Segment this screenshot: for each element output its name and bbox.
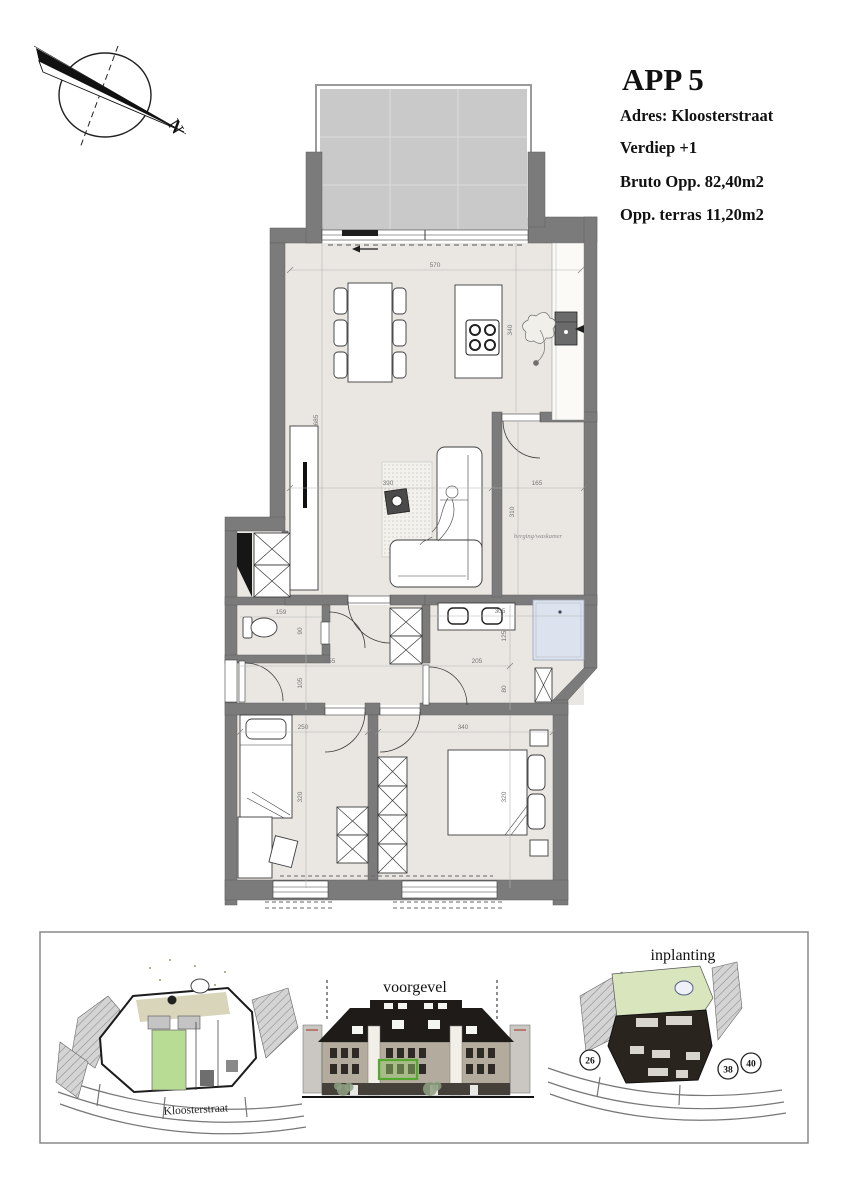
inplanting-label: inplanting bbox=[651, 947, 716, 964]
shaft-box bbox=[390, 636, 422, 664]
header-terrace-area: Opp. terras 11,20m2 bbox=[620, 205, 764, 224]
floorplan-page: N APP 5 Adres: Kloosterstraat Verdiep +1… bbox=[0, 0, 848, 1200]
house-number: 40 bbox=[746, 1060, 756, 1070]
shaft-box bbox=[535, 668, 552, 702]
tv bbox=[303, 462, 307, 508]
dim-label: 305 bbox=[495, 608, 506, 615]
voorgevel-label: voorgevel bbox=[383, 979, 447, 996]
dim-label: 685 bbox=[313, 414, 320, 425]
dining-table bbox=[334, 283, 406, 382]
house-number: 26 bbox=[585, 1057, 595, 1067]
dim-label: 320 bbox=[297, 791, 304, 802]
dim-label: 340 bbox=[507, 324, 514, 335]
wardrobe bbox=[337, 807, 368, 863]
nightstand bbox=[530, 730, 548, 746]
house-number: 38 bbox=[723, 1066, 733, 1076]
shaft-box bbox=[254, 565, 290, 597]
floor-plan: berging/waskamer bbox=[225, 85, 597, 908]
terrace bbox=[316, 85, 531, 235]
dim-label: 340 bbox=[458, 724, 469, 731]
dim-label: 159 bbox=[276, 609, 287, 616]
dim-label: 320 bbox=[501, 791, 508, 802]
header-floor: Verdiep +1 bbox=[620, 138, 697, 157]
plan-canvas: N APP 5 Adres: Kloosterstraat Verdiep +1… bbox=[0, 0, 848, 1200]
shaft-box bbox=[254, 533, 290, 565]
nightstand bbox=[530, 840, 548, 856]
side-table bbox=[385, 489, 410, 515]
header-address: Adres: Kloosterstraat bbox=[620, 106, 774, 125]
dim-label: 205 bbox=[472, 658, 483, 665]
site-panel: Kloosterstraat voorgevel bbox=[40, 932, 808, 1143]
dim-label: 355 bbox=[325, 658, 336, 665]
apartment-header: APP 5 Adres: Kloosterstraat Verdiep +1 B… bbox=[620, 62, 774, 224]
dim-label: 390 bbox=[383, 480, 394, 487]
kitchen-island bbox=[455, 285, 502, 378]
desk bbox=[238, 817, 272, 878]
dim-label: 250 bbox=[298, 724, 309, 731]
dim-label: 165 bbox=[532, 480, 543, 487]
header-gross-area: Bruto Opp. 82,40m2 bbox=[620, 172, 764, 191]
dim-label: 90 bbox=[297, 627, 304, 635]
dim-label: 570 bbox=[430, 262, 441, 269]
dim-label: 80 bbox=[501, 685, 508, 693]
toilet bbox=[243, 617, 277, 638]
apartment-facade-highlight bbox=[379, 1060, 417, 1079]
shower bbox=[533, 600, 584, 660]
wardrobe-column bbox=[378, 757, 407, 873]
single-bed bbox=[240, 715, 292, 818]
shaft-box bbox=[390, 608, 422, 636]
apartment-unit-highlight bbox=[152, 1030, 186, 1090]
berging-label: berging/waskamer bbox=[514, 533, 563, 540]
compass-north-label: N bbox=[164, 116, 188, 138]
dim-label: 310 bbox=[509, 506, 516, 517]
dim-label: 105 bbox=[297, 677, 304, 688]
apartment-title: APP 5 bbox=[622, 62, 704, 97]
dim-label: 125 bbox=[501, 630, 508, 641]
compass-rose-icon: N bbox=[34, 46, 188, 148]
